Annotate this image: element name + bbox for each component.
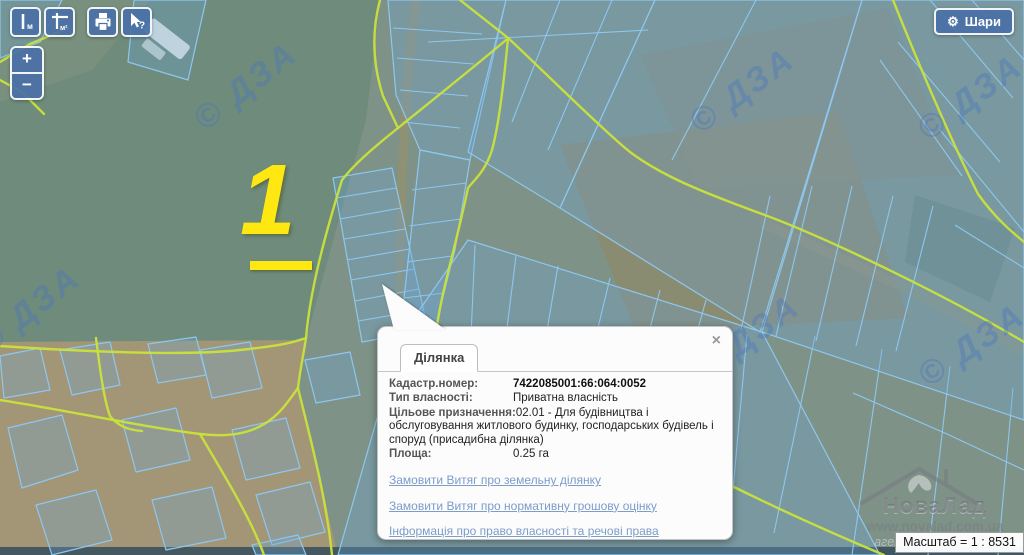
print-button[interactable] [87,7,118,37]
svg-text:м: м [27,22,33,31]
measure-length-icon: м [14,10,38,34]
gear-icon: ⚙ [947,15,959,28]
cursor-question-icon: ? [125,10,149,34]
brand-name: НоваЛад [854,493,1016,519]
identify-help-button[interactable]: ? [121,7,152,37]
zoom-in-button[interactable]: + [12,48,42,72]
scale-indicator: Масштаб = 1 : 8531 [895,532,1024,553]
measure-area-icon: м² [48,10,72,34]
zoom-control: + − [10,46,44,100]
marker-underline [250,261,312,270]
field-cadastral-number: Кадастр.номер:7422085001:66:064:0052 [389,378,720,391]
popup-links: Замовити Витяг про земельну ділянку Замо… [389,474,720,538]
order-extract-parcel-link[interactable]: Замовити Витяг про земельну ділянку [389,474,720,487]
ownership-rights-info-link[interactable]: Інформація про право власності та речові… [389,525,720,538]
area-value: 0.25 га [513,448,549,460]
svg-text:?: ? [139,21,145,32]
field-area: Площа:0.25 га [389,448,720,461]
order-extract-valuation-link[interactable]: Замовити Витяг про нормативну грошову оц… [389,500,720,513]
svg-text:м²: м² [60,25,68,32]
measure-area-button[interactable]: м² [44,7,75,37]
cadastral-number-value: 7422085001:66:064:0052 [513,378,646,390]
field-designated-use: Цільове призначення:02.01 - Для будівниц… [389,407,720,447]
popup-callout-pointer [370,274,450,332]
popup-tab-bar: Ділянка [378,327,732,372]
field-ownership-type: Тип власності:Приватна власність [389,392,720,405]
measure-length-button[interactable]: м [10,7,41,37]
layers-button[interactable]: ⚙ Шари [934,8,1014,35]
parcel-info-popup: × Ділянка Кадастр.номер:7422085001:66:06… [377,326,733,540]
map-toolbar: м м² ? [10,7,152,37]
layers-button-label: Шари [965,14,1001,29]
close-icon[interactable]: × [712,333,721,349]
tab-parcel[interactable]: Ділянка [400,344,478,372]
print-icon [91,10,115,34]
zoom-out-button[interactable]: − [12,72,42,98]
search-result-marker: 1 [240,150,296,250]
cadastral-map-app: © ДЗА © ДЗА © ДЗА © ДЗА © ДЗА © ДЗА 1 м … [0,0,1024,555]
ownership-type-value: Приватна власність [513,392,618,404]
popup-content: Кадастр.номер:7422085001:66:064:0052 Тип… [378,372,732,539]
